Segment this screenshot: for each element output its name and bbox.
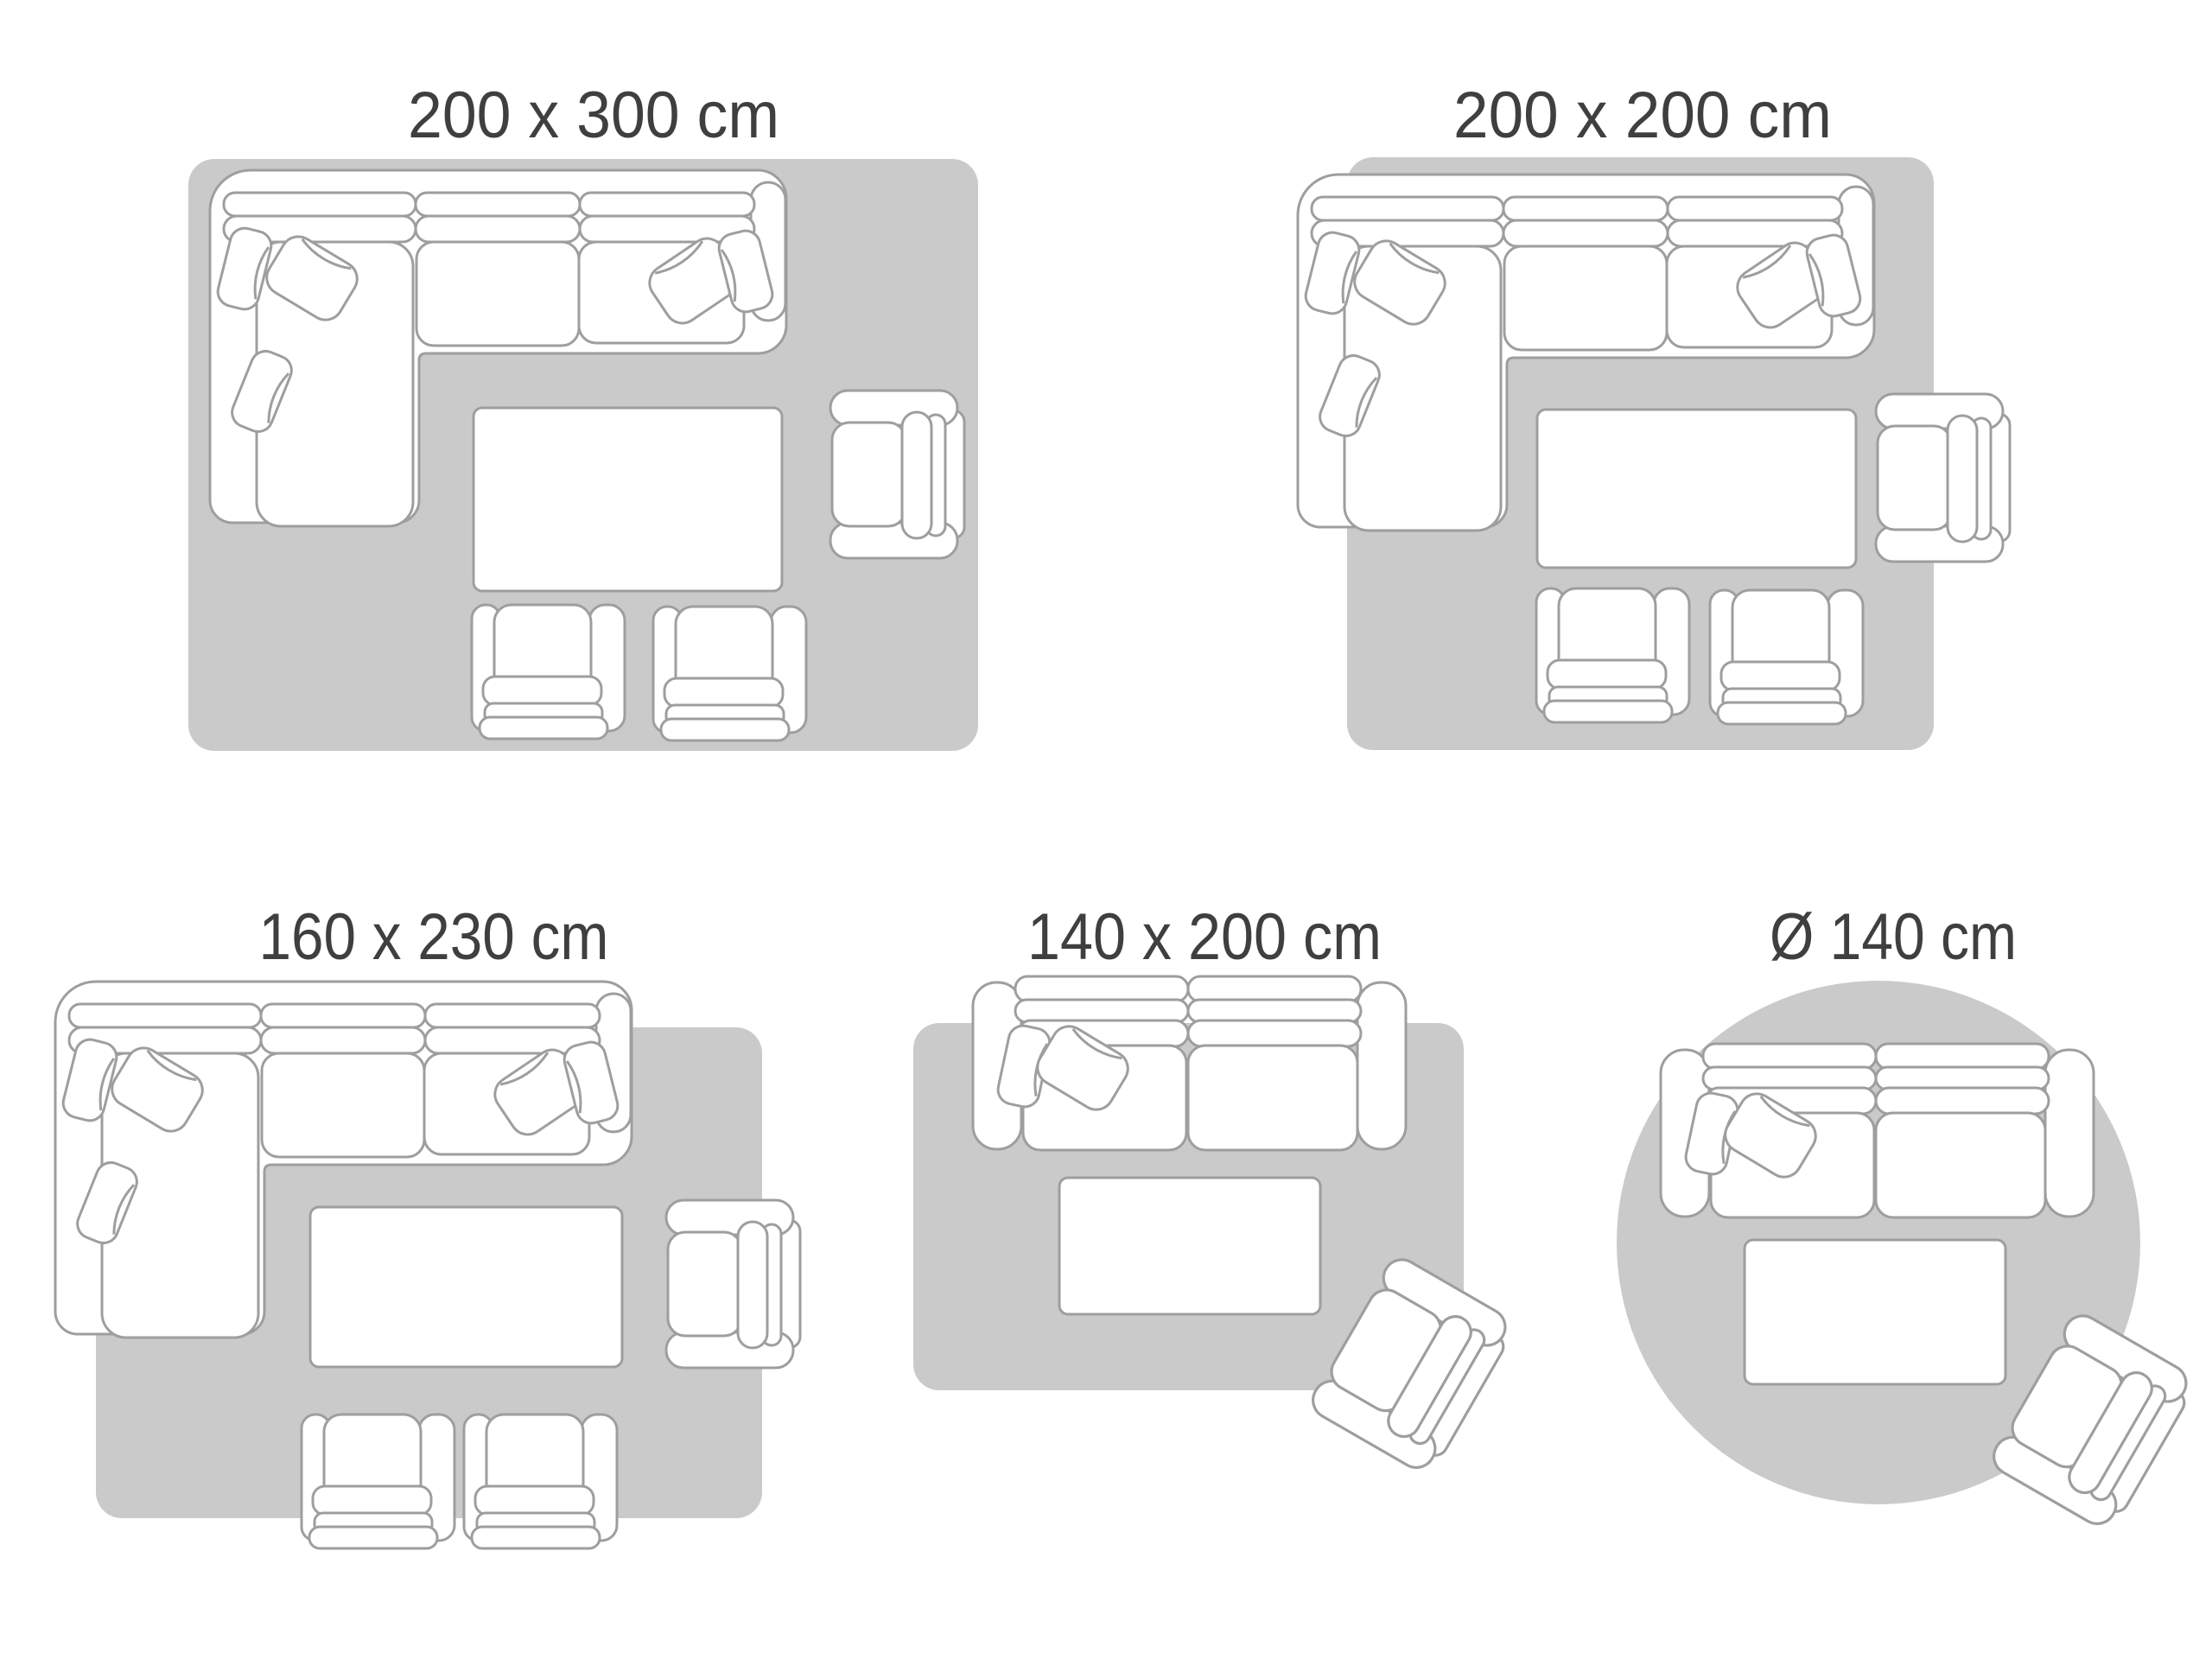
svg-text:200 x 200 cm: 200 x 200 cm [1453,79,1832,152]
svg-text:200 x 300 cm: 200 x 300 cm [408,79,779,152]
svg-text:Ø 140 cm: Ø 140 cm [1770,900,2017,974]
svg-text:140 x 200 cm: 140 x 200 cm [1027,900,1382,974]
svg-text:160 x 230 cm: 160 x 230 cm [259,900,609,974]
